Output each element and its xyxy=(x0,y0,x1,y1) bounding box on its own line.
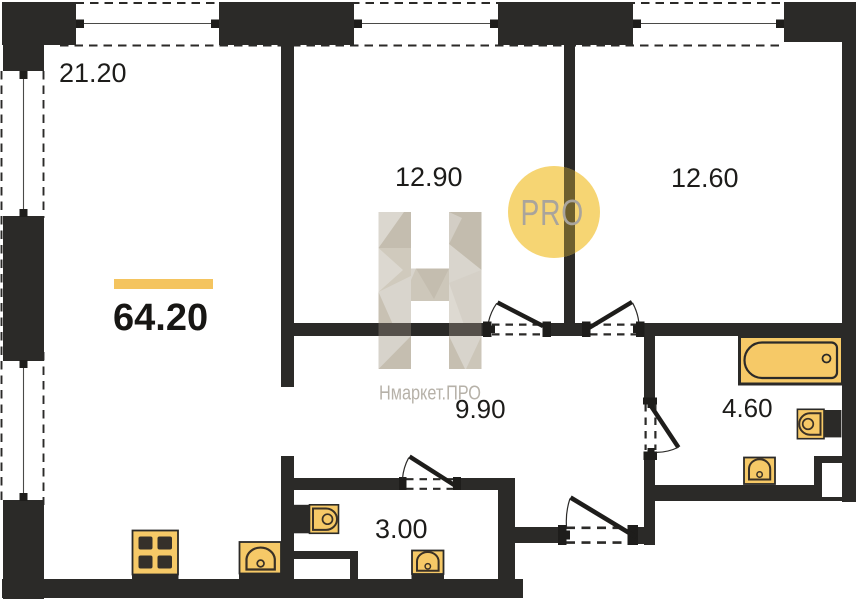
svg-text:4.60: 4.60 xyxy=(722,393,773,423)
svg-text:Нмаркет.ПРО: Нмаркет.ПРО xyxy=(379,381,481,404)
svg-text:64.20: 64.20 xyxy=(113,297,208,339)
svg-text:12.90: 12.90 xyxy=(395,162,463,192)
svg-text:3.00: 3.00 xyxy=(375,514,428,544)
svg-text:PRO: PRO xyxy=(520,193,584,233)
svg-text:21.20: 21.20 xyxy=(59,58,127,88)
svg-text:12.60: 12.60 xyxy=(671,163,739,193)
